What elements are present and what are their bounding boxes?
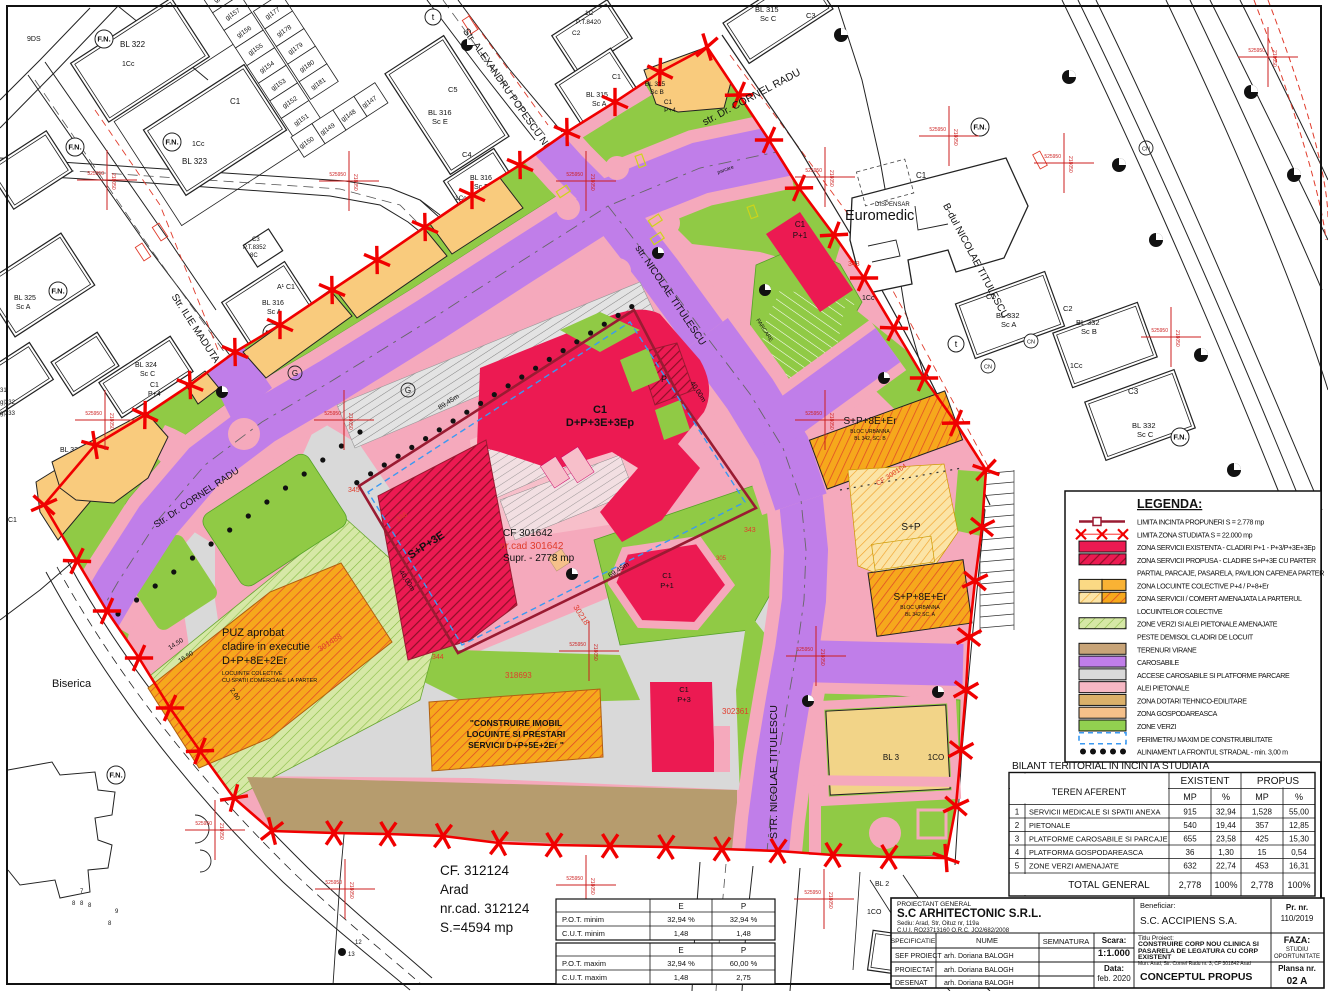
svg-text:36: 36 xyxy=(1186,848,1195,857)
svg-text:Beneficiar:: Beneficiar: xyxy=(1140,901,1175,910)
svg-text:G: G xyxy=(405,386,411,395)
svg-text:15,30: 15,30 xyxy=(1289,835,1310,844)
svg-text:nr.cad 301642: nr.cad 301642 xyxy=(500,541,564,552)
svg-text:P+3: P+3 xyxy=(677,695,691,704)
svg-text:CF. 312124: CF. 312124 xyxy=(440,863,510,878)
svg-text:453: 453 xyxy=(1255,862,1269,871)
svg-text:E: E xyxy=(678,946,683,955)
svg-text:525950: 525950 xyxy=(329,172,346,178)
svg-text:BLOC URBANNA: BLOC URBANNA xyxy=(850,429,890,435)
svg-text:23,58: 23,58 xyxy=(1216,835,1237,844)
svg-text:BL 332: BL 332 xyxy=(1132,421,1156,430)
svg-text:32,94 %: 32,94 % xyxy=(730,915,758,924)
svg-text:1: 1 xyxy=(1015,808,1020,817)
svg-text:MP: MP xyxy=(1255,792,1269,802)
svg-text:PERIMETRU MAXIM DE CONSTRUIBIL: PERIMETRU MAXIM DE CONSTRUIBILITATE xyxy=(1137,736,1273,744)
svg-text:525950: 525950 xyxy=(566,876,583,882)
svg-text:C1: C1 xyxy=(230,97,241,106)
svg-text:ZONA SERVICII EXISTENTA - CLAD: ZONA SERVICII EXISTENTA - CLADIRI P+1 - … xyxy=(1137,544,1316,552)
svg-text:arh. Doriana BALOGH: arh. Doriana BALOGH xyxy=(944,953,1014,960)
svg-text:BL 342 SC. A: BL 342 SC. A xyxy=(905,612,935,618)
svg-text:ALINIAMENT LA FRONTUL STRADAL: ALINIAMENT LA FRONTUL STRADAL - min. 3,0… xyxy=(1137,749,1288,757)
svg-text:P: P xyxy=(741,946,746,955)
svg-text:Mun. Arad, Str. Cornel Radu nr: Mun. Arad, Str. Cornel Radu nr. 3, CF 30… xyxy=(1138,961,1251,967)
svg-text:Plansa nr.: Plansa nr. xyxy=(1278,964,1316,973)
svg-text:2,75: 2,75 xyxy=(736,973,751,982)
svg-text:1Cc: 1Cc xyxy=(1070,363,1083,370)
svg-text:F.N.: F.N. xyxy=(51,287,64,296)
svg-text:4: 4 xyxy=(1015,848,1020,857)
svg-text:BLOC URBANNA: BLOC URBANNA xyxy=(900,605,940,611)
svg-text:C1: C1 xyxy=(916,171,927,180)
svg-text:110/2019: 110/2019 xyxy=(1281,914,1314,923)
svg-text:1Cc: 1Cc xyxy=(862,295,875,302)
svg-text:60,00 %: 60,00 % xyxy=(730,959,758,968)
svg-text:1,48: 1,48 xyxy=(674,929,689,938)
svg-text:PESTE DEMISOL CLADIRI DE LOCUI: PESTE DEMISOL CLADIRI DE LOCUIT xyxy=(1137,634,1254,642)
svg-text:SEF PROIECT: SEF PROIECT xyxy=(895,953,942,960)
svg-text:E: E xyxy=(678,902,683,911)
svg-text:632: 632 xyxy=(1183,862,1197,871)
svg-text:S+P+8E+Er: S+P+8E+Er xyxy=(893,592,947,603)
svg-text:Biserica: Biserica xyxy=(52,678,92,690)
svg-text:cladire in executie: cladire in executie xyxy=(222,641,310,653)
svg-text:P.T.8420: P.T.8420 xyxy=(576,19,601,26)
svg-text:S.C ARHITECTONIC S.R.L.: S.C ARHITECTONIC S.R.L. xyxy=(897,908,1041,920)
svg-text:Sc A: Sc A xyxy=(16,304,31,311)
svg-text:32,94 %: 32,94 % xyxy=(667,959,695,968)
svg-text:525950: 525950 xyxy=(929,127,946,133)
svg-text:218050: 218050 xyxy=(952,129,958,146)
svg-text:CU SPATII COMERCIALE LA PARTER: CU SPATII COMERCIALE LA PARTER xyxy=(222,678,317,684)
svg-text:218050: 218050 xyxy=(589,878,595,895)
svg-text:525950: 525950 xyxy=(87,171,104,177)
svg-text:525950: 525950 xyxy=(195,821,212,827)
svg-text:525950: 525950 xyxy=(85,411,102,417)
svg-text:218050: 218050 xyxy=(218,823,224,840)
svg-text:PIETONALE: PIETONALE xyxy=(1029,821,1070,830)
svg-text:ZONA DOTARI TEHNICO-EDILITARE: ZONA DOTARI TEHNICO-EDILITARE xyxy=(1137,697,1247,705)
svg-text:BL 316: BL 316 xyxy=(428,108,452,117)
svg-text:OPORTUNITATE: OPORTUNITATE xyxy=(1274,954,1320,960)
svg-text:C5: C5 xyxy=(448,85,458,94)
svg-text:1Cc: 1Cc xyxy=(192,141,205,148)
svg-text:PLATFORMA GOSPODAREASCA: PLATFORMA GOSPODAREASCA xyxy=(1029,848,1143,857)
svg-text:425: 425 xyxy=(1255,835,1269,844)
svg-text:%: % xyxy=(1295,792,1303,802)
svg-text:EXISTENT: EXISTENT xyxy=(1138,954,1172,961)
svg-text:PUZ aprobat: PUZ aprobat xyxy=(222,627,284,639)
svg-text:12: 12 xyxy=(355,940,362,946)
svg-text:G: G xyxy=(292,369,298,378)
svg-text:P: P xyxy=(741,902,746,911)
svg-text:218050: 218050 xyxy=(589,174,595,191)
svg-text:357: 357 xyxy=(1255,821,1269,830)
svg-text:BL 342, SC. B: BL 342, SC. B xyxy=(854,436,886,442)
svg-text:SERVICII D+P+5E+2Er ": SERVICII D+P+5E+2Er " xyxy=(468,740,564,750)
svg-text:32,94: 32,94 xyxy=(1216,808,1237,817)
svg-text:Sediu: Arad, Str, Oituz nr, 11: Sediu: Arad, Str, Oituz nr, 119a xyxy=(897,921,980,927)
svg-text:BL 322: BL 322 xyxy=(120,40,146,49)
svg-text:218050: 218050 xyxy=(108,413,114,430)
svg-text:525950: 525950 xyxy=(805,168,822,174)
svg-text:P.O.T. maxim: P.O.T. maxim xyxy=(562,959,606,968)
svg-text:ZONA GOSPODAREASCA: ZONA GOSPODAREASCA xyxy=(1137,710,1218,718)
svg-text:EXISTENT: EXISTENT xyxy=(1181,776,1230,787)
svg-text:F.N.: F.N. xyxy=(68,143,81,152)
svg-text:525950: 525950 xyxy=(569,642,586,648)
svg-text:525950: 525950 xyxy=(325,880,342,886)
svg-text:C1: C1 xyxy=(150,382,159,389)
svg-text:12,85: 12,85 xyxy=(1289,821,1310,830)
svg-text:CN: CN xyxy=(1027,340,1035,346)
svg-text:318693: 318693 xyxy=(505,671,532,680)
svg-text:1,30: 1,30 xyxy=(1218,848,1234,857)
svg-text:1Cc: 1Cc xyxy=(122,61,135,68)
svg-text:ALEI PIETONALE: ALEI PIETONALE xyxy=(1137,685,1190,693)
svg-text:218050: 218050 xyxy=(819,649,825,666)
svg-text:305: 305 xyxy=(716,556,727,562)
svg-text:Sc E: Sc E xyxy=(432,117,448,126)
svg-text:9DS: 9DS xyxy=(27,36,41,43)
svg-text:218050: 218050 xyxy=(828,170,834,187)
svg-text:SEMNATURA: SEMNATURA xyxy=(1043,937,1090,946)
svg-text:ZONA SERVICII / COMERT AMENAJA: ZONA SERVICII / COMERT AMENAJATA LA PART… xyxy=(1137,595,1302,603)
svg-text:Sc B: Sc B xyxy=(650,89,664,96)
svg-text:1CO: 1CO xyxy=(928,753,944,762)
svg-text:NUME: NUME xyxy=(976,936,998,945)
svg-text:F.N.: F.N. xyxy=(1173,433,1186,442)
svg-text:655: 655 xyxy=(1183,835,1197,844)
svg-text:ACCESE CAROSABILE SI PLATFORME: ACCESE CAROSABILE SI PLATFORME PARCARE xyxy=(1137,672,1290,680)
svg-text:343: 343 xyxy=(744,527,756,534)
svg-text:LEGENDA:: LEGENDA: xyxy=(1137,497,1202,511)
svg-text:Pr. nr.: Pr. nr. xyxy=(1286,903,1308,912)
svg-text:C3: C3 xyxy=(1128,387,1139,396)
svg-text:1,528: 1,528 xyxy=(1252,808,1273,817)
svg-text:F.N.: F.N. xyxy=(97,35,110,44)
svg-text:525950: 525950 xyxy=(804,890,821,896)
svg-text:C.U.T. minim: C.U.T. minim xyxy=(562,929,605,938)
svg-text:A¹ C1: A¹ C1 xyxy=(277,284,295,291)
svg-text:LOCUINTE SI PRESTARI: LOCUINTE SI PRESTARI xyxy=(467,729,566,739)
svg-text:P.O.T. minim: P.O.T. minim xyxy=(562,915,604,924)
svg-text:218050: 218050 xyxy=(352,174,358,191)
svg-text:C1: C1 xyxy=(664,99,673,106)
svg-text:PLATFORME CAROSABILE SI PARCAJ: PLATFORME CAROSABILE SI PARCAJE xyxy=(1029,835,1168,844)
svg-text:1:1.000: 1:1.000 xyxy=(1098,948,1130,959)
svg-text:BILANT TERITORIAL IN INCINTA S: BILANT TERITORIAL IN INCINTA STUDIATA xyxy=(1012,761,1210,772)
svg-text:19,44: 19,44 xyxy=(1216,821,1237,830)
svg-text:LOCUINTELOR COLECTIVE: LOCUINTELOR COLECTIVE xyxy=(1137,608,1223,616)
svg-text:S+P: S+P xyxy=(901,522,921,533)
svg-text:TERENURI VIRANE: TERENURI VIRANE xyxy=(1137,646,1197,654)
svg-text:15: 15 xyxy=(1258,848,1267,857)
svg-text:arh. Doriana BALOGH: arh. Doriana BALOGH xyxy=(944,967,1014,974)
svg-text:P+4: P+4 xyxy=(664,107,676,114)
svg-text:STUDIU: STUDIU xyxy=(1286,947,1308,953)
svg-text:2,778: 2,778 xyxy=(1179,880,1202,890)
svg-text:1CO: 1CO xyxy=(867,909,882,916)
svg-text:LIMITA INCINTA PROPUNERI S =: LIMITA INCINTA PROPUNERI S = 2.778 mp xyxy=(1137,519,1264,527)
svg-text:218050: 218050 xyxy=(827,892,833,909)
svg-text:BL 323: BL 323 xyxy=(182,157,208,166)
svg-text:BL 3: BL 3 xyxy=(883,753,900,762)
svg-text:C3: C3 xyxy=(252,237,260,243)
svg-text:S.C. ACCIPIENS S.A.: S.C. ACCIPIENS S.A. xyxy=(1140,916,1237,927)
svg-text:Data:: Data: xyxy=(1104,964,1124,973)
svg-text:100%: 100% xyxy=(1214,880,1237,890)
svg-text:525950: 525950 xyxy=(566,172,583,178)
svg-text:218050: 218050 xyxy=(1174,330,1180,347)
svg-text:F.N.: F.N. xyxy=(973,123,986,132)
svg-text:C2: C2 xyxy=(572,30,581,37)
svg-text:F.N.: F.N. xyxy=(165,138,178,147)
svg-text:8C: 8C xyxy=(250,253,258,259)
svg-text:Sc C: Sc C xyxy=(140,371,155,378)
svg-text:344: 344 xyxy=(432,654,444,661)
svg-text:arh. Doriana BALOGH: arh. Doriana BALOGH xyxy=(944,980,1014,987)
svg-text:CAROSABILE: CAROSABILE xyxy=(1137,659,1179,667)
svg-text:32,94 %: 32,94 % xyxy=(667,915,695,924)
svg-text:P.T.8352: P.T.8352 xyxy=(243,245,267,251)
svg-text:525950: 525950 xyxy=(1044,154,1061,160)
svg-text:F.N.: F.N. xyxy=(109,771,122,780)
svg-text:P+1: P+1 xyxy=(660,581,674,590)
svg-text:2: 2 xyxy=(1015,821,1020,830)
svg-text:540: 540 xyxy=(1183,821,1197,830)
svg-text:525950: 525950 xyxy=(796,647,813,653)
svg-text:1C: 1C xyxy=(585,10,594,17)
svg-text:1,48: 1,48 xyxy=(736,929,751,938)
svg-text:CONSTRUIRE CORP NOU CLINICA SI: CONSTRUIRE CORP NOU CLINICA SI xyxy=(1138,941,1259,948)
svg-text:MP: MP xyxy=(1183,792,1197,802)
svg-text:ZONA SERVICII PROPUSA - CLADIR: ZONA SERVICII PROPUSA - CLADIRE S+P+3E C… xyxy=(1137,557,1316,565)
svg-text:%: % xyxy=(1222,792,1230,802)
svg-text:345: 345 xyxy=(348,487,360,494)
svg-text:TEREN AFERENT: TEREN AFERENT xyxy=(1052,787,1127,797)
svg-text:525950: 525950 xyxy=(1151,328,1168,334)
svg-text:Euromedic: Euromedic xyxy=(845,208,914,224)
svg-text:BL 324: BL 324 xyxy=(135,362,157,369)
svg-text:BL 2: BL 2 xyxy=(875,881,889,888)
svg-text:DESENAT: DESENAT xyxy=(895,980,928,987)
svg-text:55,00: 55,00 xyxy=(1289,808,1310,817)
svg-text:Sc A: Sc A xyxy=(592,101,607,108)
svg-text:C1: C1 xyxy=(679,685,689,694)
svg-text:525950: 525950 xyxy=(1248,48,1265,54)
svg-text:P: P xyxy=(661,374,667,384)
svg-text:C1: C1 xyxy=(662,571,672,580)
svg-text:D+P+3E+3Ep: D+P+3E+3Ep xyxy=(566,417,634,429)
svg-text:Sc C: Sc C xyxy=(1137,430,1154,439)
svg-text:218050: 218050 xyxy=(110,173,116,190)
svg-text:218050: 218050 xyxy=(828,413,834,430)
svg-text:BL 325: BL 325 xyxy=(14,295,36,302)
svg-text:C1: C1 xyxy=(795,220,806,229)
svg-text:0,54: 0,54 xyxy=(1291,848,1307,857)
svg-text:P+4: P+4 xyxy=(148,391,161,398)
svg-text:C4: C4 xyxy=(462,150,472,159)
svg-text:STR. NICOLAE TITULESCU: STR. NICOLAE TITULESCU xyxy=(768,705,780,839)
svg-text:ZONE VERZI AMENAJATE: ZONE VERZI AMENAJATE xyxy=(1029,862,1119,871)
svg-text:ZONE VERZI SI ALEI PIETONALE A: ZONE VERZI SI ALEI PIETONALE AMENAJATE xyxy=(1137,621,1278,629)
svg-text:13: 13 xyxy=(348,952,355,958)
svg-text:S+P+8E+Er: S+P+8E+Er xyxy=(843,416,897,427)
svg-text:ZONA LOCUINTE COLECTIVE P+4 /: ZONA LOCUINTE COLECTIVE P+4 / P+8+Er xyxy=(1137,582,1269,590)
svg-text:SERVICII MEDICALE SI SPATII AN: SERVICII MEDICALE SI SPATII ANEXA xyxy=(1029,808,1160,817)
svg-text:525950: 525950 xyxy=(324,411,341,417)
svg-text:BL 332: BL 332 xyxy=(1076,318,1100,327)
svg-text:218050: 218050 xyxy=(347,413,353,430)
svg-text:Sc A: Sc A xyxy=(1001,320,1016,329)
svg-text:302361: 302361 xyxy=(722,707,749,716)
svg-text:16,31: 16,31 xyxy=(1289,862,1310,871)
svg-text:5: 5 xyxy=(1015,862,1020,871)
svg-text:TOTAL GENERAL: TOTAL GENERAL xyxy=(1068,880,1150,891)
svg-text:C.U.I. RO23713160 O.R.C.: C.U.I. RO23713160 O.R.C. JO2/682/2008 xyxy=(897,928,1010,934)
svg-text:Arad: Arad xyxy=(440,882,469,897)
svg-text:CONCEPTUL PROPUS: CONCEPTUL PROPUS xyxy=(1140,971,1252,983)
svg-text:PROIECTAT: PROIECTAT xyxy=(895,967,935,974)
svg-text:nr.cad. 312124: nr.cad. 312124 xyxy=(440,901,530,916)
svg-text:C.U.T. maxim: C.U.T. maxim xyxy=(562,973,607,982)
svg-text:218050: 218050 xyxy=(348,882,354,899)
svg-text:22,74: 22,74 xyxy=(1216,862,1237,871)
svg-text:FAZA:: FAZA: xyxy=(1284,935,1311,945)
svg-text:LIMITA ZONA STUDIATA S = 22.0: LIMITA ZONA STUDIATA S = 22.000 mp xyxy=(1137,531,1253,539)
svg-text:ZONE VERZI: ZONE VERZI xyxy=(1137,723,1176,731)
svg-text:SPECIFICATIE: SPECIFICATIE xyxy=(891,938,936,945)
svg-text:2,778: 2,778 xyxy=(1251,880,1274,890)
svg-text:218050: 218050 xyxy=(1067,156,1073,173)
svg-text:S.=4594 mp: S.=4594 mp xyxy=(440,920,513,935)
svg-text:C1: C1 xyxy=(612,74,621,81)
svg-text:Scara:: Scara: xyxy=(1102,936,1126,945)
svg-text:100%: 100% xyxy=(1287,880,1310,890)
svg-text:PROPUS: PROPUS xyxy=(1257,776,1300,787)
svg-text:PARTIAL PARCAJE, PASARELA, PAV: PARTIAL PARCAJE, PASARELA, PAVILION CAFE… xyxy=(1137,570,1324,578)
svg-text:C1: C1 xyxy=(8,517,17,524)
svg-text:915: 915 xyxy=(1183,808,1197,817)
svg-text:Sc B: Sc B xyxy=(1081,327,1097,336)
svg-text:C1: C1 xyxy=(593,404,607,416)
svg-text:Supr. - 2778 mp: Supr. - 2778 mp xyxy=(503,553,575,564)
svg-text:C2: C2 xyxy=(1063,304,1073,313)
svg-text:02 A: 02 A xyxy=(1287,976,1308,987)
svg-text:343: 343 xyxy=(848,261,860,268)
svg-text:feb. 2020: feb. 2020 xyxy=(1097,974,1131,983)
svg-text:PROIECTANT GENERAL: PROIECTANT GENERAL xyxy=(897,901,972,908)
svg-text:CF 301642: CF 301642 xyxy=(503,528,553,539)
svg-text:P+1: P+1 xyxy=(793,231,808,240)
svg-text:218050: 218050 xyxy=(592,644,598,661)
svg-text:3: 3 xyxy=(1015,835,1020,844)
svg-text:1,48: 1,48 xyxy=(674,973,689,982)
svg-text:525950: 525950 xyxy=(805,411,822,417)
svg-text:BL 316: BL 316 xyxy=(262,300,284,307)
svg-text:218050: 218050 xyxy=(1271,50,1277,67)
svg-text:BL 315: BL 315 xyxy=(645,81,666,88)
svg-text:CN: CN xyxy=(984,365,992,371)
svg-text:Sc C: Sc C xyxy=(760,14,777,23)
svg-text:"CONSTRUIRE IMOBIL: "CONSTRUIRE IMOBIL xyxy=(470,718,562,728)
svg-text:LOCUINTE COLECTIVE: LOCUINTE COLECTIVE xyxy=(222,671,283,677)
svg-text:C3: C3 xyxy=(806,11,816,20)
svg-text:D+P+8E+2Er: D+P+8E+2Er xyxy=(222,655,287,667)
